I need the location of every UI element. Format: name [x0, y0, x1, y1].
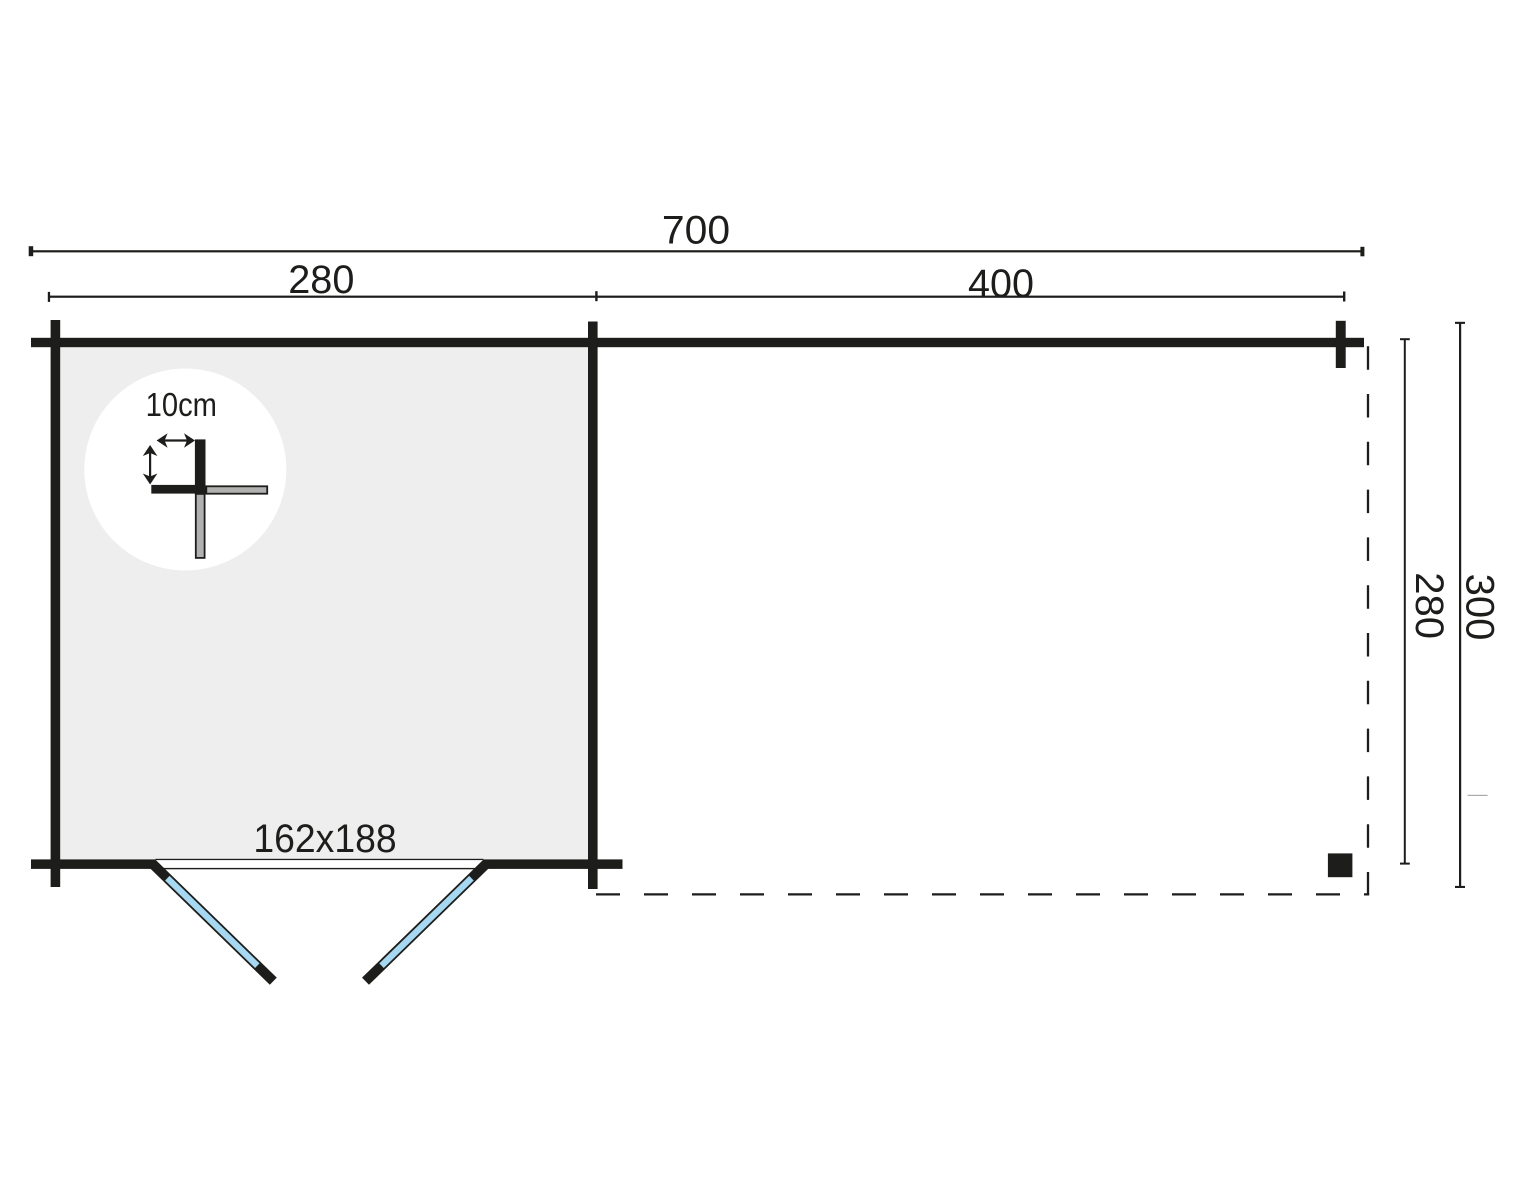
svg-text:162x188: 162x188 — [253, 817, 396, 861]
svg-text:400: 400 — [968, 262, 1034, 306]
svg-text:700: 700 — [662, 208, 730, 252]
svg-text:300: 300 — [1457, 574, 1501, 641]
svg-text:10cm: 10cm — [146, 386, 217, 424]
svg-text:280: 280 — [1407, 572, 1451, 639]
svg-text:280: 280 — [288, 258, 354, 302]
